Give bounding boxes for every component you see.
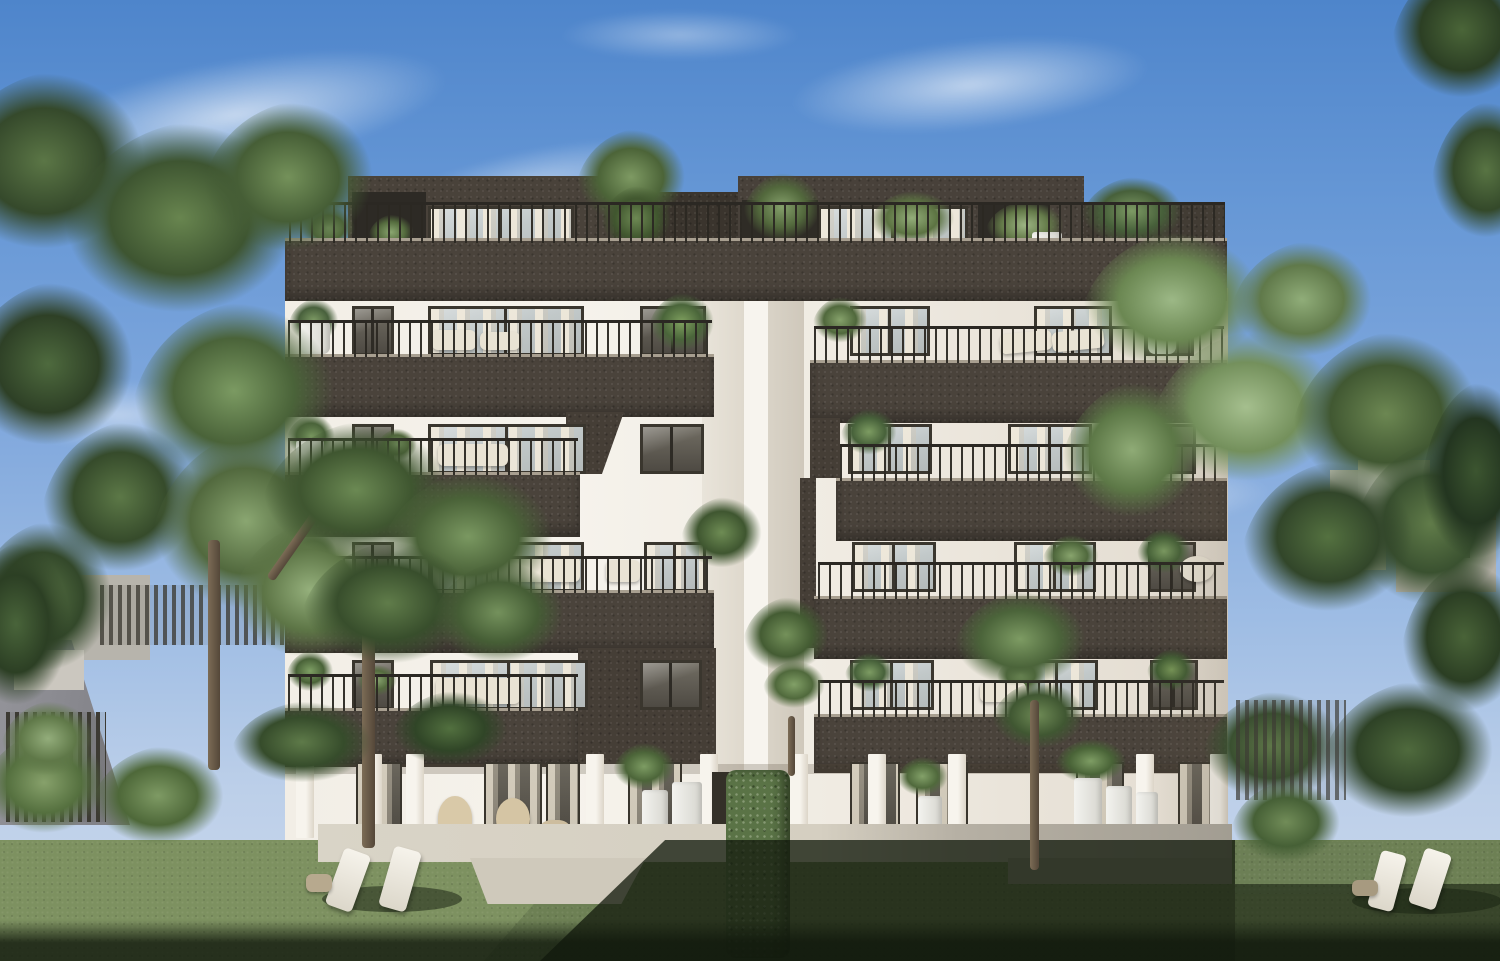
tree-canopy [990, 680, 1110, 780]
shrub [390, 690, 540, 800]
cloud [560, 10, 800, 60]
hedge [0, 700, 120, 810]
fascia-connector [810, 418, 840, 478]
side-table [1352, 880, 1378, 896]
window [640, 424, 704, 474]
shrub [230, 700, 410, 820]
scene [0, 0, 1500, 961]
tree-trunk [208, 540, 220, 770]
terrace-railing [289, 202, 1225, 243]
tree-trunk [1030, 700, 1039, 870]
tree-canopy [430, 560, 600, 710]
tree-canopy [762, 660, 842, 730]
hedge [1230, 780, 1370, 900]
tree-trunk [788, 716, 795, 776]
foreground-shadow [0, 920, 1500, 961]
window [640, 660, 702, 710]
glass-door [546, 762, 580, 826]
terrace-fascia [285, 238, 1227, 301]
tree-canopy [1060, 380, 1240, 580]
side-table [306, 874, 332, 892]
tree-canopy [200, 100, 420, 320]
